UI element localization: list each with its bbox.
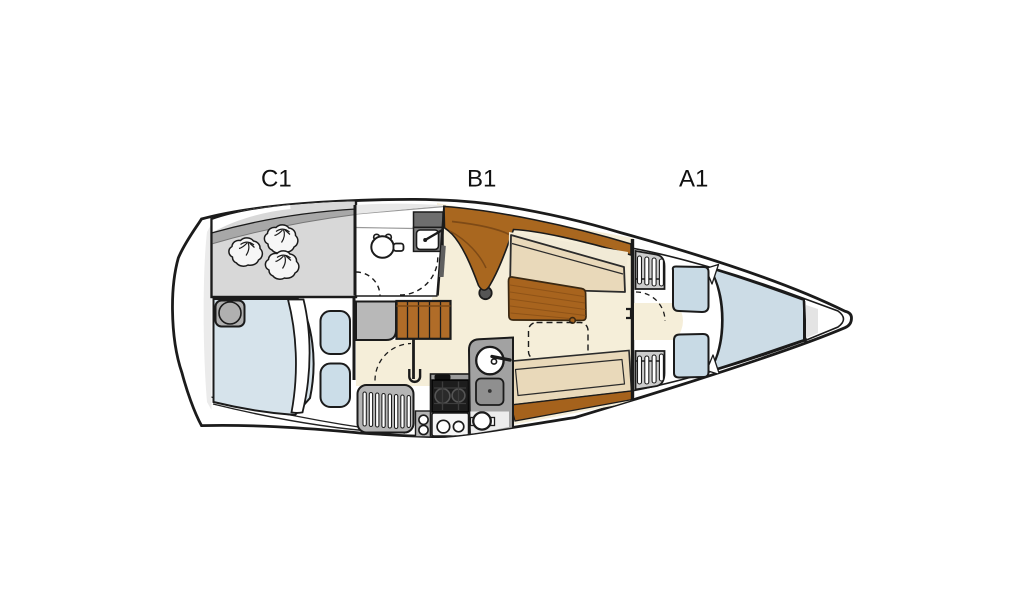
svg-text:B1: B1	[467, 166, 496, 193]
svg-text:A1: A1	[679, 166, 708, 193]
svg-text:C1: C1	[261, 166, 292, 193]
